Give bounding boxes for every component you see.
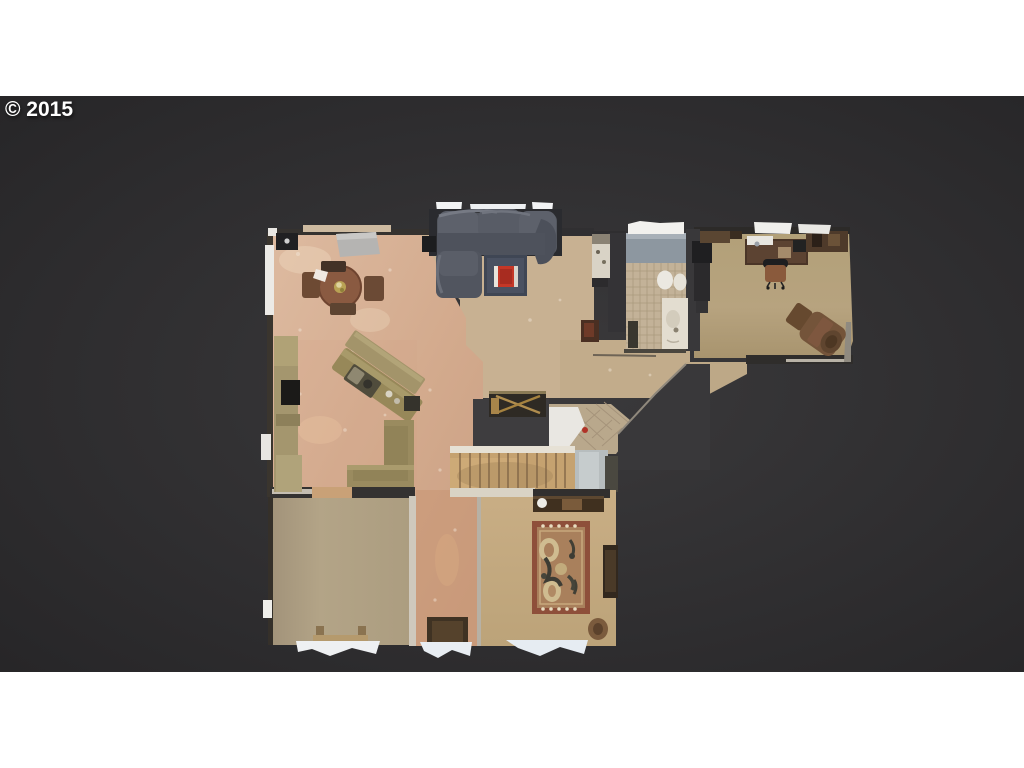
svg-text:© 2015: © 2015 — [5, 98, 73, 121]
